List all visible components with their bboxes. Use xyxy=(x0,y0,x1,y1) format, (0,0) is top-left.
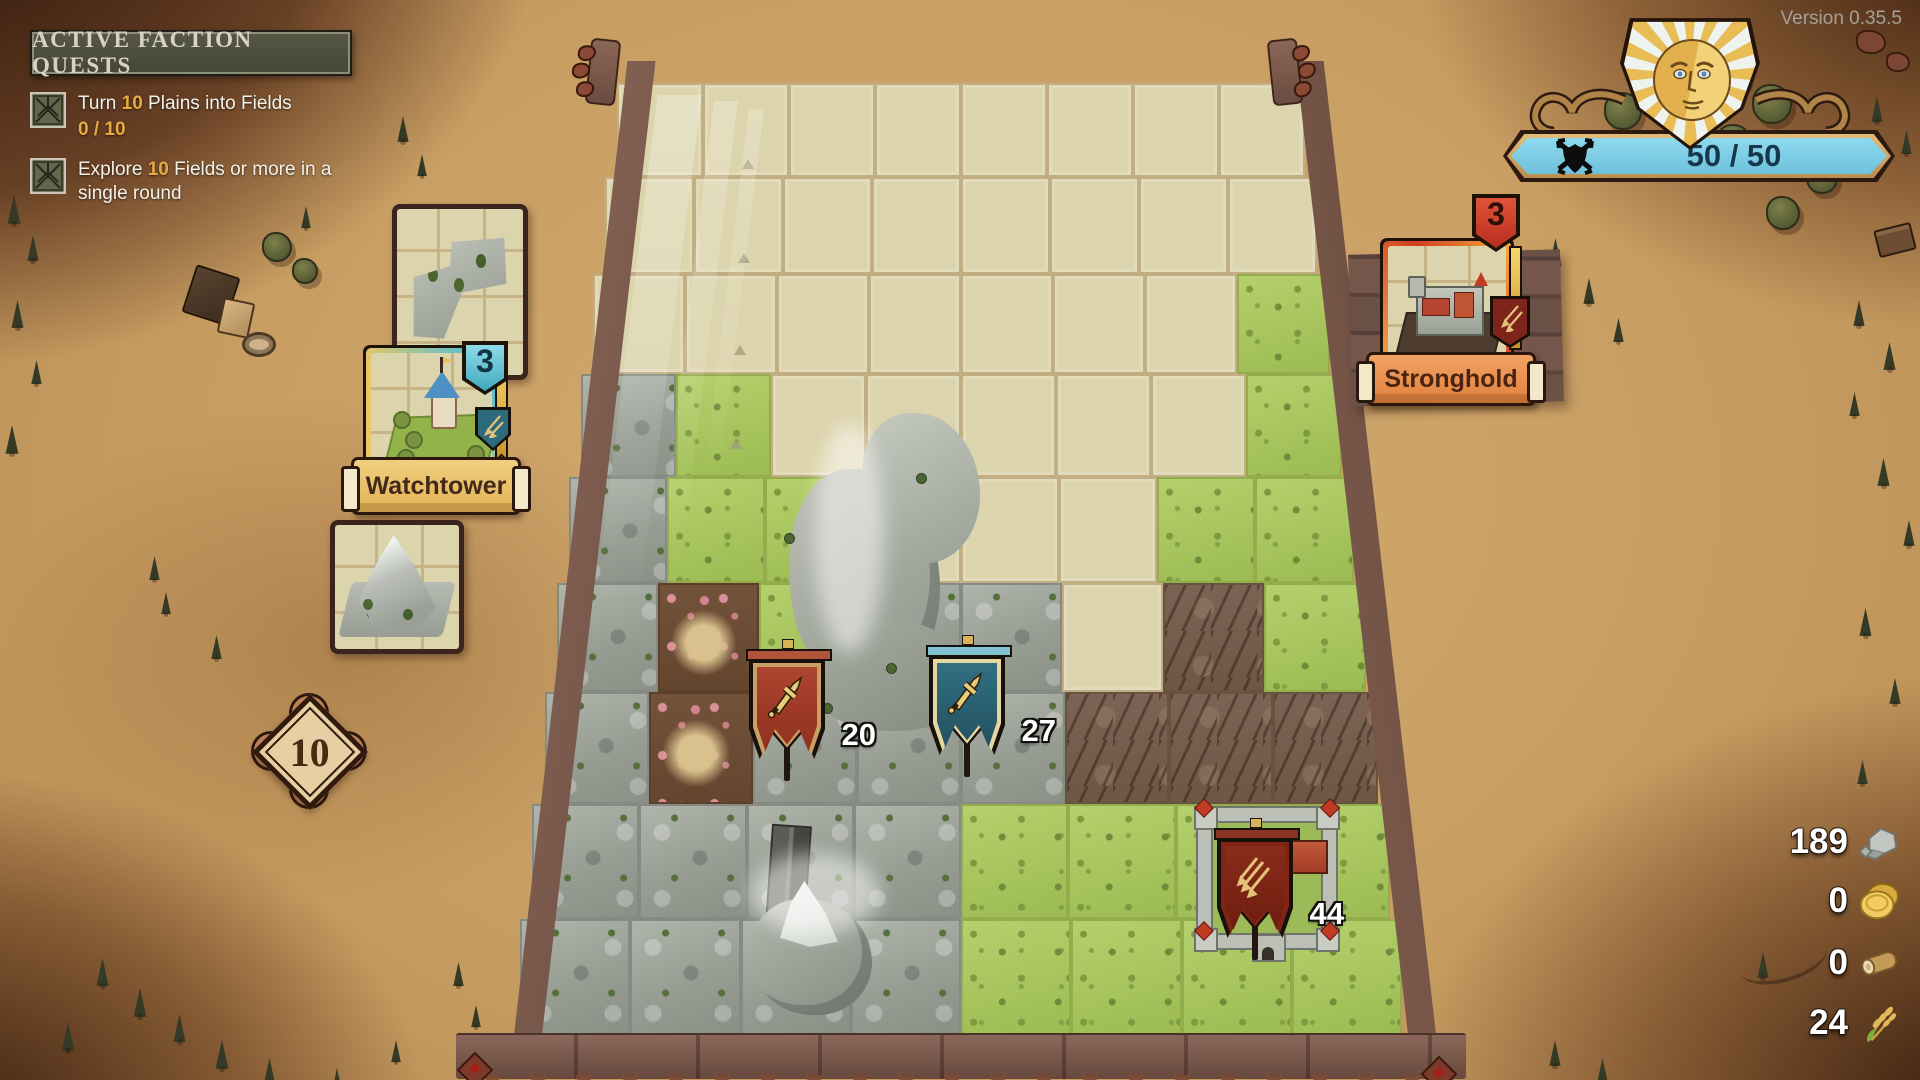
resource-wheat: 24 xyxy=(1809,997,1902,1049)
board-tile-canyon[interactable] xyxy=(1065,692,1169,804)
stronghold-card[interactable]: 3 Stronghold xyxy=(1380,238,1530,403)
flag-pole-tip xyxy=(1250,818,1262,828)
board-tile-unexplored[interactable] xyxy=(1053,274,1145,374)
pine-tree-icon xyxy=(10,300,25,329)
board-tile-dirt[interactable] xyxy=(649,692,753,804)
pine-tree-icon xyxy=(1876,458,1891,487)
resource-stone: 189 xyxy=(1790,816,1902,868)
wheat-icon xyxy=(1856,1000,1902,1046)
resource-value: 24 xyxy=(1809,1003,1848,1043)
quest-leaf-checkbox-icon xyxy=(30,158,66,194)
board-tile-unexplored[interactable] xyxy=(961,274,1053,374)
game-board: 44 20 xyxy=(514,83,1408,1035)
arrows-icon xyxy=(1233,854,1277,898)
board-row xyxy=(605,177,1317,274)
pine-tree-icon xyxy=(148,556,161,581)
quest-item: Turn 10 Plains into Fields 0 / 10 xyxy=(30,92,390,142)
board-tile-rock[interactable] xyxy=(532,804,639,919)
card-name: Stronghold xyxy=(1384,365,1517,394)
board-tile-unexplored[interactable] xyxy=(1056,374,1151,477)
pine-tree-icon xyxy=(470,1005,482,1028)
resource-value: 189 xyxy=(1790,822,1848,862)
pine-tree-icon xyxy=(1852,300,1866,327)
card-name: Watchtower xyxy=(366,472,507,501)
army-flag-red[interactable]: 20 xyxy=(744,639,830,789)
board-tile-unexplored[interactable] xyxy=(1151,374,1246,477)
board-tile-unexplored[interactable] xyxy=(875,83,961,177)
board-tile-unexplored[interactable] xyxy=(1133,83,1219,177)
pine-tree-icon xyxy=(1596,1058,1609,1080)
board-tile-grass[interactable] xyxy=(1264,583,1365,692)
quest-leaf-checkbox-icon xyxy=(30,92,66,128)
board-tile-unexplored[interactable] xyxy=(961,177,1050,274)
resource-value: 0 xyxy=(1829,881,1848,921)
stone-icon xyxy=(1856,819,1902,865)
pine-tree-icon xyxy=(172,1014,187,1043)
pine-tree-icon xyxy=(1882,342,1897,371)
quest-progress: 0 / 10 xyxy=(78,118,292,142)
pine-tree-icon xyxy=(396,116,410,143)
pine-tree-icon xyxy=(214,1040,230,1070)
board-tile-grass[interactable] xyxy=(961,919,1071,1035)
board-tile-unexplored[interactable] xyxy=(1062,583,1163,692)
board-row xyxy=(593,274,1330,374)
board-tile-grass[interactable] xyxy=(961,804,1068,919)
board-tile-rock[interactable] xyxy=(520,919,630,1035)
board-tile-unexplored[interactable] xyxy=(1228,177,1317,274)
board-tile-unexplored[interactable] xyxy=(1047,83,1133,177)
mountain-peak xyxy=(752,881,876,1017)
resource-wood: 0 xyxy=(1829,937,1902,989)
carved-ornament-strip xyxy=(474,1075,1454,1080)
pine-tree-icon xyxy=(1582,278,1596,305)
board-tile-unexplored[interactable] xyxy=(593,274,685,374)
board-row xyxy=(617,83,1305,177)
board-tile-rock[interactable] xyxy=(545,692,649,804)
pine-tree-icon xyxy=(210,635,223,660)
sword-icon xyxy=(945,671,989,715)
card-name-banner: Stronghold xyxy=(1366,352,1536,406)
pine-tree-icon xyxy=(390,1040,402,1063)
scout-arrow-icon xyxy=(738,253,750,263)
faction-pendant-icon xyxy=(475,407,511,451)
quest-panel-title: ACTIVE FACTION QUESTS xyxy=(30,30,352,76)
board-tile-rock[interactable] xyxy=(630,919,740,1035)
active-faction-quests-panel: ACTIVE FACTION QUESTS Turn 10 Plains int… xyxy=(30,30,390,206)
rock-tile-art xyxy=(410,236,511,346)
board-tile-canyon[interactable] xyxy=(1163,583,1264,692)
board-tile-unexplored[interactable] xyxy=(961,83,1047,177)
board-tile-unexplored[interactable] xyxy=(869,274,961,374)
tree-icon xyxy=(1766,196,1800,230)
version-label: Version 0.35.5 xyxy=(1781,8,1902,30)
pine-tree-icon xyxy=(60,1022,76,1052)
board-tile-grass[interactable] xyxy=(1237,274,1329,374)
round-counter: 10 xyxy=(252,694,368,810)
card-name-banner: Watchtower xyxy=(351,457,521,515)
pine-tree-icon xyxy=(452,962,465,987)
pine-tree-icon xyxy=(4,425,20,455)
quest-text: Turn 10 Plains into Fields 0 / 10 xyxy=(78,92,292,142)
flag-pole-tip xyxy=(962,635,974,645)
board-tile-unexplored[interactable] xyxy=(783,177,872,274)
scout-arrow-icon xyxy=(742,159,754,169)
board-tile-grass[interactable] xyxy=(676,374,771,477)
board-tile-unexplored[interactable] xyxy=(617,83,703,177)
pine-tree-icon xyxy=(6,195,22,225)
pine-tree-icon xyxy=(1612,318,1625,343)
sword-icon xyxy=(765,675,809,719)
rock-icon xyxy=(1856,30,1886,54)
pine-tree-icon xyxy=(1858,608,1873,637)
board-tile-unexplored[interactable] xyxy=(685,274,777,374)
board-tile-rock[interactable] xyxy=(639,804,746,919)
scout-arrow-icon xyxy=(730,439,742,449)
board-tile-unexplored[interactable] xyxy=(1059,477,1157,583)
board-tile-rock[interactable] xyxy=(557,583,658,692)
board-tile-rock[interactable] xyxy=(581,374,676,477)
faction-pennant-icon xyxy=(1490,296,1530,348)
resource-value: 0 xyxy=(1829,943,1848,983)
hut-icon xyxy=(217,297,256,339)
tree-icon xyxy=(262,232,292,262)
pine-tree-icon xyxy=(1902,520,1916,547)
pine-tree-icon xyxy=(300,206,312,229)
pine-tree-icon xyxy=(1756,952,1770,979)
army-strength: 20 xyxy=(842,717,876,753)
board-tile-unexplored[interactable] xyxy=(789,83,875,177)
board-tile-rock[interactable] xyxy=(569,477,667,583)
pine-tree-icon xyxy=(1548,1040,1562,1067)
watchtower-roof xyxy=(424,371,460,398)
army-strength: 44 xyxy=(1310,896,1344,932)
board-tile-grass[interactable] xyxy=(1071,919,1181,1035)
resource-gold: 0 xyxy=(1829,875,1902,927)
cart-icon xyxy=(1873,222,1917,258)
board-tile-grass[interactable] xyxy=(1068,804,1175,919)
board-tile-unexplored[interactable] xyxy=(1139,177,1228,274)
watchtower-card[interactable]: 3 Watchtower xyxy=(363,345,508,520)
well-icon xyxy=(242,332,276,357)
board-tile-canyon[interactable] xyxy=(1273,692,1377,804)
pine-tree-icon xyxy=(160,592,172,615)
tile-card-mountain[interactable] xyxy=(330,520,464,654)
stronghold-on-board[interactable]: 44 xyxy=(1194,806,1346,964)
pine-tree-icon xyxy=(26,235,40,262)
wood-log-icon xyxy=(1856,940,1902,986)
card-count-badge: 3 xyxy=(462,341,508,395)
board-tile-grass[interactable] xyxy=(1157,477,1255,583)
army-flag-dark-red[interactable]: 44 xyxy=(1212,818,1298,968)
board-tile-grass[interactable] xyxy=(1246,374,1341,477)
board-tile-unexplored[interactable] xyxy=(872,177,961,274)
dead-branch-icon xyxy=(1734,926,1833,993)
pine-tree-icon xyxy=(132,988,148,1018)
game-screen: 44 20 xyxy=(0,0,1920,1080)
pine-tree-icon xyxy=(416,154,428,177)
pine-tree-icon xyxy=(330,1068,344,1080)
quest-item: Explore 10 Fields or more in a single ro… xyxy=(30,158,390,206)
pine-tree-icon xyxy=(30,360,43,385)
card-count-badge: 3 xyxy=(1472,194,1520,252)
sun-face-icon xyxy=(1653,39,1731,121)
pine-tree-icon xyxy=(1900,130,1913,155)
rock-icon xyxy=(1886,52,1910,72)
quest-text: Explore 10 Fields or more in a single ro… xyxy=(78,158,370,206)
rail-finial xyxy=(1267,38,1304,107)
round-counter-value: 10 xyxy=(290,729,330,776)
scout-arrow-icon xyxy=(734,345,746,355)
army-strength: 27 xyxy=(1022,713,1056,749)
board-tile-unexplored[interactable] xyxy=(605,177,694,274)
flag-pole-tip xyxy=(782,639,794,649)
army-flag-teal[interactable]: 27 xyxy=(924,635,1010,785)
tree-icon xyxy=(292,258,318,284)
pine-tree-icon xyxy=(1870,96,1884,123)
sun-emblem xyxy=(1620,14,1760,150)
gold-coins-icon xyxy=(1856,878,1902,924)
pine-tree-icon xyxy=(95,958,110,987)
pine-tree-icon xyxy=(1856,760,1869,785)
board-tile-canyon[interactable] xyxy=(1169,692,1273,804)
pine-tree-icon xyxy=(262,1058,277,1080)
board-tile-grass[interactable] xyxy=(667,477,765,583)
pine-tree-icon xyxy=(1888,678,1902,705)
pine-tree-icon xyxy=(1848,392,1861,417)
board-tile-unexplored[interactable] xyxy=(1145,274,1237,374)
board-tile-grass[interactable] xyxy=(1255,477,1353,583)
board-tile-unexplored[interactable] xyxy=(1050,177,1139,274)
board-tile-unexplored[interactable] xyxy=(777,274,869,374)
